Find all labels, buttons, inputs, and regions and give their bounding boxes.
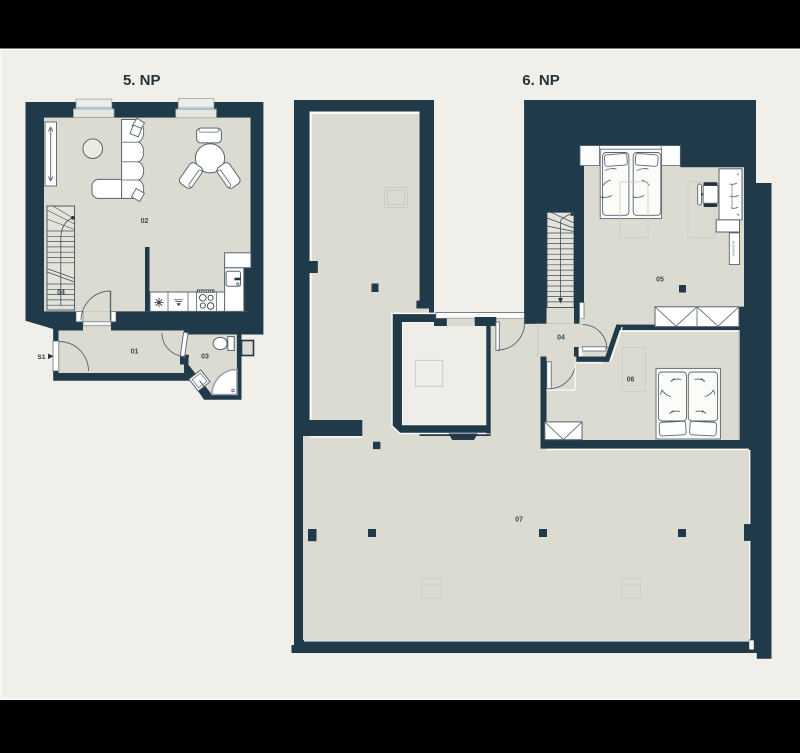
- svg-text:04: 04: [557, 335, 565, 342]
- svg-text:05: 05: [656, 277, 664, 284]
- svg-text:6. NP: 6. NP: [522, 72, 560, 89]
- svg-text:03: 03: [201, 354, 209, 361]
- svg-text:04: 04: [57, 290, 65, 297]
- svg-text:PRACOVNI STUL: PRACOVNI STUL: [730, 184, 734, 209]
- svg-text:RADIATOR: RADIATOR: [731, 240, 735, 256]
- svg-text:01: 01: [131, 349, 139, 356]
- svg-text:S1: S1: [38, 354, 46, 361]
- svg-text:02: 02: [141, 218, 149, 225]
- svg-text:06: 06: [627, 377, 635, 384]
- svg-text:07: 07: [515, 517, 523, 524]
- svg-text:5. NP: 5. NP: [123, 72, 161, 89]
